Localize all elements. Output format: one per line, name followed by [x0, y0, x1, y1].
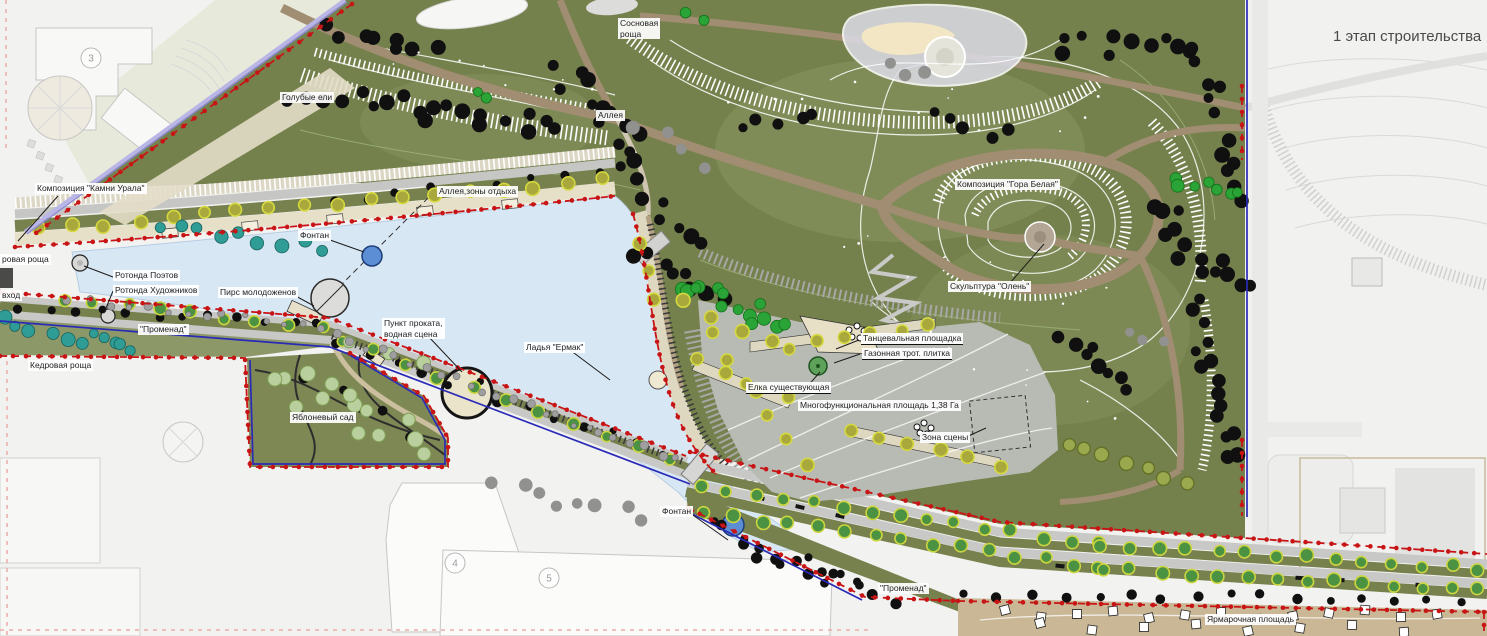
tree — [1189, 56, 1201, 68]
label-multifunctional-square: Многофункциональная площадь 1,38 Га — [798, 400, 961, 411]
tree — [676, 144, 687, 155]
tree — [444, 381, 452, 389]
tree — [368, 343, 379, 354]
tree — [1091, 358, 1107, 374]
tree — [1167, 222, 1182, 237]
tree — [1097, 95, 1100, 98]
tree — [630, 172, 643, 185]
tree — [22, 324, 35, 337]
tree — [613, 139, 624, 150]
tree — [1185, 569, 1198, 582]
tree — [761, 410, 772, 421]
tree — [1115, 371, 1128, 384]
tree — [1178, 542, 1191, 555]
tree — [1127, 589, 1137, 599]
tree — [89, 329, 98, 338]
tree — [680, 7, 691, 18]
tree — [1471, 564, 1484, 577]
tree — [1199, 317, 1210, 328]
tree — [749, 114, 761, 126]
tree — [838, 331, 850, 343]
tree — [587, 425, 592, 430]
market-stall — [1191, 619, 1201, 629]
tree — [674, 223, 684, 233]
tree — [672, 454, 678, 460]
tree — [978, 129, 981, 132]
tree — [811, 335, 823, 347]
tree — [622, 501, 634, 513]
market-stall — [1144, 613, 1155, 624]
tree — [918, 66, 931, 79]
tree — [930, 107, 940, 117]
tree — [378, 406, 388, 416]
tree — [995, 461, 1008, 474]
tree — [379, 345, 387, 353]
tree — [369, 101, 379, 111]
label-ermak-boat: Ладья "Ермак" — [524, 342, 585, 353]
label-fountain-lower: Фонтан — [660, 506, 693, 517]
tree — [1216, 253, 1230, 267]
label-apple-orchard: Яблоневый сад — [290, 412, 356, 423]
tree — [804, 553, 812, 561]
tree — [1209, 107, 1220, 118]
tree — [333, 329, 342, 338]
tree — [521, 124, 537, 140]
tree — [733, 305, 743, 315]
tree — [780, 433, 791, 444]
tree — [1203, 337, 1214, 348]
tree — [47, 327, 59, 339]
tree — [676, 293, 690, 307]
tree — [229, 203, 242, 216]
tree — [1214, 147, 1230, 163]
tree — [553, 88, 555, 90]
tree — [1156, 471, 1170, 485]
tree — [1174, 205, 1184, 215]
tree — [453, 373, 460, 380]
tree — [458, 60, 460, 62]
tree — [1002, 123, 1015, 136]
tree — [956, 121, 969, 134]
tree — [1156, 594, 1166, 604]
tree — [781, 516, 794, 529]
tree — [554, 84, 565, 95]
tree — [483, 65, 485, 67]
tree — [108, 303, 115, 310]
tree — [1212, 374, 1226, 388]
tree — [186, 312, 191, 317]
tree — [1143, 462, 1155, 474]
tree — [626, 121, 640, 135]
tree — [1210, 409, 1224, 423]
tree — [705, 311, 718, 324]
tree — [987, 132, 999, 144]
tree — [345, 337, 354, 346]
market-stall — [1347, 620, 1356, 629]
tree — [1078, 442, 1091, 455]
market-stall — [999, 604, 1010, 615]
tree — [1194, 360, 1208, 374]
tree — [71, 307, 81, 317]
tree — [332, 31, 345, 44]
tree — [468, 383, 474, 389]
tree — [1008, 551, 1021, 564]
tree — [379, 95, 395, 111]
tree — [1055, 46, 1070, 61]
label-fair-square: Ярмарочная площадь — [1205, 614, 1296, 625]
tree — [455, 103, 471, 119]
tree — [947, 97, 949, 99]
tree — [176, 220, 188, 232]
tree — [1077, 31, 1087, 41]
tree — [945, 113, 956, 124]
tree — [393, 63, 395, 65]
tree — [867, 235, 869, 237]
tree — [262, 202, 274, 214]
tree — [691, 353, 703, 365]
tree — [921, 514, 932, 525]
tree — [1422, 596, 1430, 604]
tree — [989, 261, 991, 263]
entrance — [0, 268, 13, 288]
tree — [1238, 546, 1250, 558]
tree — [1193, 591, 1203, 601]
tree — [1098, 564, 1110, 576]
building-number-3: 3 — [88, 54, 94, 65]
tree — [1416, 562, 1427, 573]
tree — [773, 98, 776, 101]
tree — [363, 347, 369, 353]
tree — [703, 290, 714, 301]
tree — [873, 432, 885, 444]
tree — [1214, 546, 1225, 557]
tree — [66, 218, 79, 231]
label-cedar-grove-clipped: ровая роща — [0, 254, 51, 265]
tree — [1119, 456, 1133, 470]
tree — [1068, 560, 1081, 573]
tree — [1059, 130, 1061, 132]
tree — [1124, 33, 1140, 49]
tree — [372, 429, 385, 442]
tree — [871, 529, 882, 540]
tree — [1123, 562, 1135, 574]
label-artists-rotunda: Ротонда Художников — [113, 285, 199, 296]
tree — [191, 223, 202, 234]
tree — [352, 426, 366, 440]
label-stage-zone: Зона сцены — [920, 432, 970, 443]
tree — [895, 533, 906, 544]
tree — [264, 319, 270, 325]
tree — [1037, 532, 1050, 545]
tree — [1214, 81, 1226, 93]
tree — [1027, 590, 1037, 600]
tree — [894, 508, 908, 522]
tree — [1177, 237, 1192, 252]
tree — [1211, 184, 1222, 195]
tree — [519, 478, 533, 492]
tree — [857, 242, 860, 245]
tree — [48, 306, 56, 314]
tree — [13, 305, 22, 314]
label-blue-spruces: Голубые ели — [280, 92, 334, 103]
tree — [845, 425, 857, 437]
tree — [485, 477, 498, 490]
tree — [1147, 199, 1163, 215]
tree — [1186, 303, 1200, 317]
tree — [707, 327, 719, 339]
tree — [836, 570, 844, 578]
tree — [1195, 253, 1208, 266]
tree — [635, 514, 647, 526]
tree — [1300, 548, 1314, 562]
market-stall — [1108, 606, 1118, 616]
tree — [335, 95, 349, 109]
tree — [1137, 335, 1147, 345]
tree — [504, 84, 506, 86]
tree — [1447, 582, 1459, 594]
tree — [317, 325, 324, 332]
tree — [1233, 188, 1243, 198]
tree — [654, 214, 665, 225]
tree — [397, 89, 410, 102]
tree — [282, 322, 287, 327]
tree — [1191, 346, 1201, 356]
tree — [423, 363, 431, 371]
tree — [755, 299, 766, 310]
building-number-4: 4 — [452, 559, 458, 570]
tree — [343, 388, 357, 402]
tree — [1355, 576, 1369, 590]
tree — [721, 354, 733, 366]
fountain-upper — [362, 246, 382, 266]
tree — [837, 501, 850, 514]
tree — [316, 391, 330, 405]
tree — [757, 516, 771, 530]
tree — [667, 268, 679, 280]
tree — [866, 506, 879, 519]
tree — [843, 246, 845, 248]
label-existing-spruce: Елка существующая — [746, 382, 831, 394]
tree — [1255, 589, 1264, 598]
tree — [766, 335, 779, 348]
masterplan-map: 3 4 5 1 этап строительства Композиция "К… — [0, 0, 1487, 636]
tree — [1417, 583, 1428, 594]
tree — [951, 88, 953, 90]
context-right — [1245, 0, 1487, 570]
tree — [899, 69, 911, 81]
tree — [500, 116, 511, 127]
tree — [204, 313, 212, 321]
tree — [979, 524, 991, 536]
tree — [699, 162, 711, 174]
tree — [917, 111, 920, 114]
market-stall — [1295, 623, 1305, 633]
tree — [1221, 164, 1234, 177]
label-fountain-upper: Фонтан — [298, 230, 331, 241]
tree — [595, 429, 602, 436]
tree — [1025, 384, 1027, 386]
tree — [695, 480, 708, 493]
tree — [1204, 93, 1214, 103]
tree — [1213, 388, 1223, 398]
tree — [1062, 303, 1064, 305]
tree — [366, 31, 380, 45]
tree — [1066, 536, 1079, 549]
tree — [1471, 582, 1483, 594]
tree — [552, 411, 558, 417]
tree — [1087, 401, 1089, 403]
tree — [757, 312, 770, 325]
market-stall — [1087, 625, 1097, 635]
tree — [126, 304, 132, 310]
tree — [431, 40, 446, 55]
tree — [426, 100, 441, 115]
label-deer-sculpture: Скульптура "Олень" — [948, 281, 1031, 292]
tree — [1097, 593, 1105, 601]
tree — [1458, 598, 1466, 606]
tree — [885, 58, 896, 69]
tree — [720, 486, 731, 497]
tree — [548, 122, 561, 135]
tree — [479, 389, 486, 396]
tree — [473, 108, 486, 121]
tree — [1356, 557, 1367, 568]
tree — [527, 400, 535, 408]
tree — [609, 434, 616, 441]
tree — [417, 447, 431, 461]
tree — [738, 123, 747, 132]
tree — [249, 316, 260, 327]
tree — [1211, 570, 1224, 583]
tree — [1052, 331, 1065, 344]
tree — [1041, 552, 1052, 563]
tree — [1104, 50, 1115, 61]
label-entrance: вход — [0, 290, 22, 301]
tree — [751, 489, 763, 501]
market-stall — [1072, 609, 1081, 618]
tree — [572, 498, 583, 509]
tree — [166, 310, 172, 316]
tree — [1447, 558, 1460, 571]
tree — [854, 81, 857, 84]
tree — [275, 239, 289, 253]
tree — [300, 321, 306, 327]
tree — [658, 197, 668, 207]
tree — [1390, 597, 1399, 606]
tree — [801, 458, 814, 471]
tree — [1202, 78, 1215, 91]
tree — [1242, 571, 1255, 584]
tree — [801, 98, 804, 101]
tree — [1196, 266, 1209, 279]
tree — [481, 93, 491, 103]
label-alley-rest-zones: Аллея,зоны отдыха — [437, 186, 518, 197]
tree — [61, 333, 75, 347]
tree — [784, 344, 795, 355]
tree — [955, 539, 968, 552]
tree — [948, 516, 959, 527]
tree — [921, 318, 934, 331]
tree — [934, 443, 948, 457]
tree — [719, 366, 732, 379]
tree — [777, 494, 789, 506]
tree — [1210, 266, 1221, 277]
tree — [1270, 551, 1282, 563]
tree — [1327, 573, 1341, 587]
tree — [587, 99, 597, 109]
tree — [983, 544, 995, 556]
tree — [402, 413, 415, 426]
tree — [1059, 33, 1069, 43]
tree — [543, 412, 549, 418]
tree — [1330, 553, 1342, 565]
tree — [1244, 280, 1256, 292]
tree — [1220, 267, 1235, 282]
tree — [775, 560, 784, 569]
tree — [551, 501, 562, 512]
tree — [1161, 33, 1171, 43]
tree — [691, 283, 701, 293]
tree — [1120, 384, 1132, 396]
tree — [1124, 542, 1137, 555]
tree — [1272, 573, 1284, 585]
tree — [751, 552, 762, 563]
label-lawn-paving: Газонная трот. плитка — [862, 348, 952, 360]
label-wedding-pier: Пирс молодоженов — [218, 287, 298, 298]
tree — [114, 338, 125, 349]
tree — [407, 362, 412, 367]
tree — [1159, 336, 1169, 346]
tree — [1105, 287, 1107, 289]
label-cedar-grove: Кедровая роща — [28, 360, 93, 371]
tree — [588, 499, 602, 513]
tree — [1026, 369, 1028, 371]
tree — [716, 301, 727, 312]
label-ural-stones-composition: Композиция "Камни Урала" — [35, 183, 147, 194]
tree — [331, 199, 344, 212]
tree — [1114, 417, 1117, 420]
tree — [533, 487, 545, 499]
label-dance-floor: Танцевальная площадка — [861, 333, 963, 345]
tree — [901, 438, 914, 451]
tree — [405, 42, 420, 57]
tree — [1386, 558, 1397, 569]
tree — [973, 368, 975, 370]
tree — [591, 88, 594, 91]
tree — [1190, 182, 1200, 192]
tree — [640, 441, 649, 450]
tree — [562, 79, 564, 81]
tree — [268, 372, 282, 386]
tree — [853, 578, 861, 586]
tree — [718, 288, 729, 299]
tree — [727, 101, 730, 104]
label-poets-rotunda: Ротонда Поэтов — [113, 270, 180, 281]
tree — [299, 199, 311, 211]
label-white-mountain-composition: Композиция "Гора Белая" — [955, 179, 1060, 190]
label-alley: Аллея — [596, 110, 625, 121]
tree — [418, 51, 420, 53]
market-stall — [1180, 610, 1190, 620]
tree — [390, 352, 397, 359]
tree — [548, 60, 559, 71]
tree — [1094, 540, 1107, 553]
tree — [1388, 581, 1399, 592]
tree — [493, 393, 500, 400]
tree — [155, 223, 165, 233]
label-rental-point-water-stage: Пункт проката, водная сцена — [382, 318, 445, 339]
tree — [125, 346, 135, 356]
